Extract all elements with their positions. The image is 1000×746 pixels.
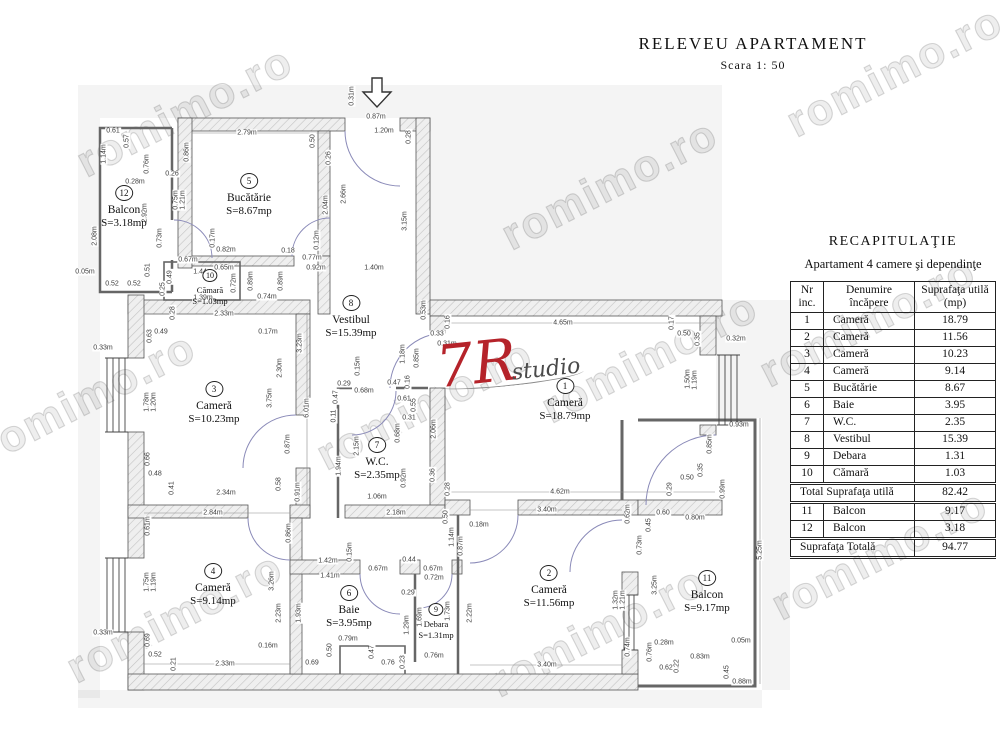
room-area-cell: 8.67 [915,380,996,397]
room-nr-cell: 5 [791,380,824,397]
room-area-cell: 11.56 [915,329,996,346]
recap-row: 1Cameră18.79 [791,312,996,329]
room-name-cell: Cameră [824,329,915,346]
room-area-cell: 1.31 [915,448,996,465]
page: romimo.roromimo.roromimo.roromimo.roromi… [0,0,1000,746]
recap-subtitle: Apartament 4 camere şi dependinţe [790,257,996,272]
total-label-cell: Total Suprafaţa utilă [791,483,915,502]
room-nr-cell: 8 [791,431,824,448]
room-area-cell: 3.18 [915,520,996,538]
grand-label-cell: Suprafaţa Totală [791,538,915,557]
recap-row: 9Debara1.31 [791,448,996,465]
window-room4 [105,558,128,632]
recap-title: RECAPITULAŢIE [790,234,996,250]
room-nr-cell: 12 [791,520,824,538]
recap-header-row: Nr inc. Denumire încăpere Suprafaţa util… [791,282,996,313]
recap-row: 12Balcon3.18 [791,520,996,538]
room-area-cell: 1.03 [915,465,996,483]
room-nr-cell: 4 [791,363,824,380]
room-name-cell: Cămară [824,465,915,483]
room-nr-cell: 11 [791,502,824,520]
room-area-cell: 10.23 [915,346,996,363]
recap-row: 8Vestibul15.39 [791,431,996,448]
room-nr-cell: 7 [791,414,824,431]
col-header-nr: Nr inc. [791,282,824,313]
room-name-cell: Balcon [824,520,915,538]
recap-row: 11Balcon9.17 [791,502,996,520]
recap-grand-row: Suprafaţa Totală94.77 [791,538,996,557]
room-name-cell: Debara [824,448,915,465]
room-nr-cell: 6 [791,397,824,414]
room-name-cell: Balcon [824,502,915,520]
room-name-cell: Cameră [824,363,915,380]
room-area-cell: 9.17 [915,502,996,520]
recap-row: 6Baie3.95 [791,397,996,414]
room-nr-cell: 2 [791,329,824,346]
room-nr-cell: 9 [791,448,824,465]
window-room3 [105,358,128,432]
window-room2-balcony [622,595,638,650]
room-area-cell: 15.39 [915,431,996,448]
room-name-cell: Vestibul [824,431,915,448]
col-header-name: Denumire încăpere [824,282,915,313]
room-area-cell: 2.35 [915,414,996,431]
recap-table: Nr inc. Denumire încăpere Suprafaţa util… [790,281,996,559]
recap-total-row: Total Suprafaţa utilă82.42 [791,483,996,502]
recap-row: 7W.C.2.35 [791,414,996,431]
recap-row: 10Cămară1.03 [791,465,996,483]
recap-row: 2Cameră11.56 [791,329,996,346]
recap-row: 3Cameră10.23 [791,346,996,363]
room-area-cell: 3.95 [915,397,996,414]
room-name-cell: W.C. [824,414,915,431]
room-area-cell: 9.14 [915,363,996,380]
room-nr-cell: 1 [791,312,824,329]
room-area-cell: 18.79 [915,312,996,329]
room-name-cell: Cameră [824,312,915,329]
room-name-cell: Baie [824,397,915,414]
room-name-cell: Bucătărie [824,380,915,397]
grand-value-cell: 94.77 [915,538,996,557]
recap-row: 4Cameră9.14 [791,363,996,380]
recap-row: 5Bucătărie8.67 [791,380,996,397]
total-value-cell: 82.42 [915,483,996,502]
recap-block: RECAPITULAŢIE Apartament 4 camere şi dep… [790,234,996,559]
col-header-area: Suprafaţa utilă (mp) [915,282,996,313]
room-name-cell: Cameră [824,346,915,363]
room-nr-cell: 10 [791,465,824,483]
room-nr-cell: 3 [791,346,824,363]
